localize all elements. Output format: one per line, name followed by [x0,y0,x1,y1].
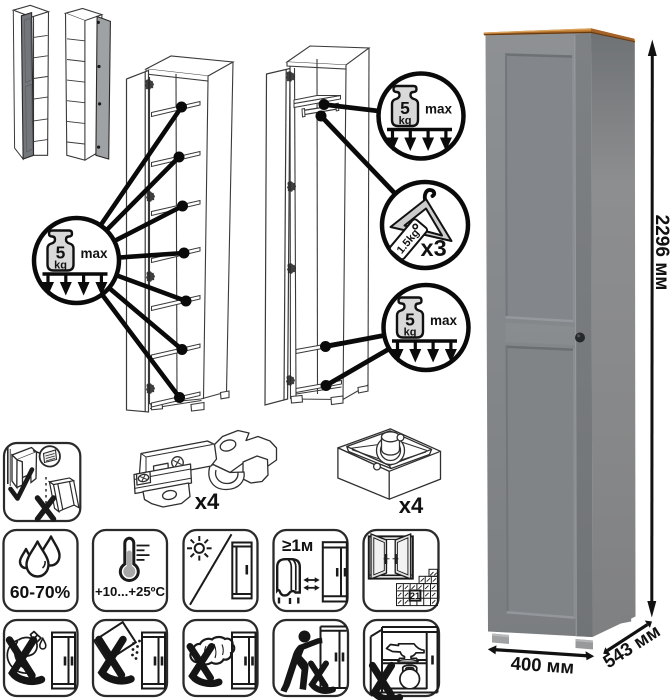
svg-text:60-70%: 60-70% [10,582,71,602]
svg-text:x3: x3 [421,235,447,261]
svg-text:x4: x4 [399,493,424,518]
svg-text:400 мм: 400 мм [510,652,575,677]
svg-text:+10...+25ºC: +10...+25ºC [95,584,166,599]
svg-text:2296 мм: 2296 мм [651,215,672,291]
svg-text:21: 21 [410,591,421,602]
svg-text:x4: x4 [195,489,220,514]
svg-text:≥1м: ≥1м [282,536,313,555]
